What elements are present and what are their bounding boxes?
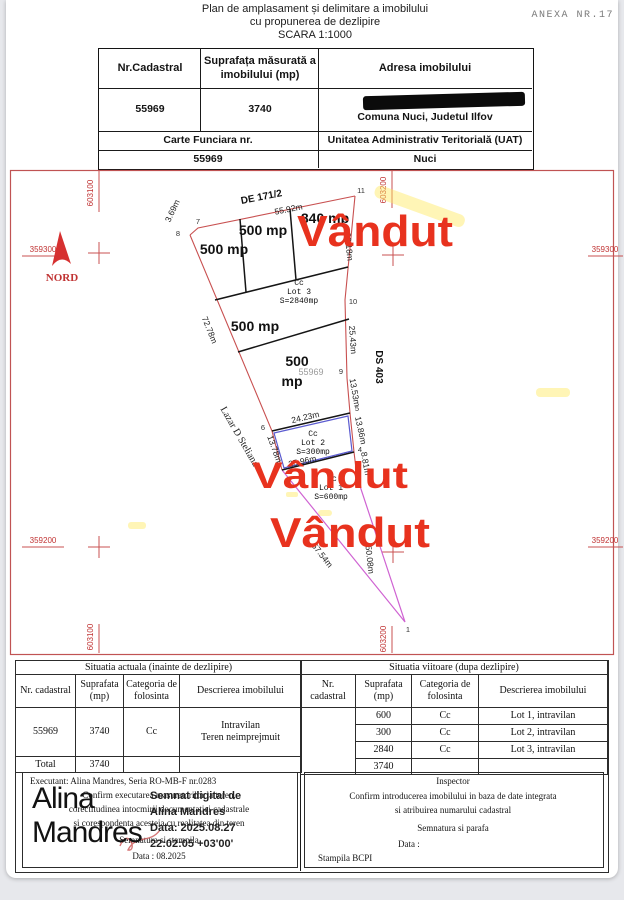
- grid-label-359300-right: 359300: [592, 245, 619, 254]
- svg-text:13.53m: 13.53m: [348, 378, 363, 408]
- sold-overlay-2: Vândut: [252, 455, 408, 496]
- lot2-suprafata: 300: [356, 725, 412, 742]
- road-right-label: DS 403: [373, 350, 384, 384]
- descriere-line1: Intravilan: [182, 720, 299, 732]
- digital-line1: Semnat digital de: [150, 788, 241, 804]
- svg-text:500 mp: 500 mp: [200, 241, 248, 257]
- svg-text:6: 6: [261, 423, 265, 432]
- current-row-descriere: Intravilan Teren neimprejmuit: [180, 708, 302, 757]
- lot3-descriere: Lot 3, intravilan: [479, 742, 608, 759]
- inspector-line3: Semnatura si parafa: [304, 823, 602, 833]
- lot3-categoria: Cc: [412, 742, 479, 759]
- future-header-nr: Nr. cadastral: [301, 675, 356, 708]
- grid-label-603100-top: 603100: [86, 179, 95, 206]
- digital-line2: Alina Mandres: [150, 804, 241, 820]
- svg-text:11: 11: [357, 186, 365, 195]
- future-nr-cell: [301, 708, 356, 775]
- svg-text:Lot 3: Lot 3: [287, 288, 311, 297]
- parcel-number-faint: 55969: [298, 367, 323, 377]
- svg-text:13.86m: 13.86m: [353, 415, 369, 445]
- svg-text:72.78m: 72.78m: [200, 315, 220, 345]
- future-table-title: Situatia viitoare (dupa dezlipire): [301, 661, 608, 675]
- inspector-line5: Stampila BCPI: [318, 853, 372, 863]
- future-header-suprafata: Suprafata (mp): [356, 675, 412, 708]
- svg-text:Cc: Cc: [308, 430, 318, 439]
- grid-label-359200-right: 359200: [592, 536, 619, 545]
- sold-overlay-1: Vândut: [297, 207, 453, 256]
- signature-name-line2: Mandres: [32, 816, 142, 850]
- svg-text:4: 4: [358, 445, 362, 454]
- grid-label-603100-bottom: 603100: [86, 623, 95, 650]
- svg-text:8: 8: [176, 229, 180, 238]
- grid-label-359300-left: 359300: [30, 245, 57, 254]
- svg-text:25.43m: 25.43m: [347, 325, 359, 354]
- digital-line3: Data: 2025.08.27: [150, 820, 241, 836]
- current-situation-table: Situatia actuala (inainte de dezlipire) …: [15, 660, 302, 773]
- future-table-row-1: 600 Cc Lot 1, intravilan: [301, 708, 608, 725]
- current-table-title: Situatia actuala (inainte de dezlipire): [16, 661, 302, 675]
- current-row-nr: 55969: [16, 708, 76, 757]
- svg-text:5: 5: [355, 404, 359, 413]
- current-header-categoria: Categoria de folosinta: [124, 675, 180, 708]
- future-situation-table: Situatia viitoare (dupa dezlipire) Nr. c…: [300, 660, 608, 775]
- road-top-label: DE 171/2: [240, 188, 283, 207]
- lot1-descriere: Lot 1, intravilan: [479, 708, 608, 725]
- future-header-descriere: Descrierea imobilului: [479, 675, 608, 708]
- svg-text:S=2840mp: S=2840mp: [280, 297, 319, 306]
- svg-text:500 mp: 500 mp: [231, 318, 279, 334]
- current-header-nr: Nr. cadastral: [16, 675, 76, 708]
- lot2-label: Cc Lot 2 S=300mp: [296, 430, 330, 457]
- digital-line4: 22:02:05 +03'00': [150, 836, 241, 852]
- future-header-categoria: Categoria de folosinta: [412, 675, 479, 708]
- svg-text:Lot 2: Lot 2: [301, 439, 325, 448]
- signature-name-line1: Alina: [32, 782, 94, 816]
- grid-label-359200-left: 359200: [30, 536, 57, 545]
- current-table-row: 55969 3740 Cc Intravilan Teren neimprejm…: [16, 708, 302, 757]
- sold-overlay-3: Vândut: [270, 509, 430, 556]
- lot2-descriere: Lot 2, intravilan: [479, 725, 608, 742]
- svg-text:7: 7: [196, 217, 200, 226]
- north-label: NORD: [46, 272, 78, 284]
- inspector-line4: Data :: [398, 839, 420, 849]
- current-header-suprafata: Suprafata (mp): [76, 675, 124, 708]
- svg-text:1: 1: [406, 625, 410, 634]
- lot1-suprafata: 600: [356, 708, 412, 725]
- svg-text:3.69m: 3.69m: [163, 198, 182, 224]
- svg-text:10: 10: [349, 297, 357, 306]
- svg-text:500 mp: 500 mp: [239, 222, 287, 238]
- inspector-line1: Confirm introducerea imobilului in baza …: [304, 791, 602, 801]
- inspector-line2: si atribuirea numarului cadastral: [304, 805, 602, 815]
- current-header-descriere: Descrierea imobilului: [180, 675, 302, 708]
- current-row-suprafata: 3740: [76, 708, 124, 757]
- grid-label-603200-bottom: 603200: [379, 625, 388, 652]
- digital-signature-block: Semnat digital de Alina Mandres Data: 20…: [150, 788, 241, 852]
- cadastral-document: Plan de amplasament și delimitare a imob…: [0, 0, 624, 900]
- lot3-suprafata: 2840: [356, 742, 412, 759]
- svg-text:Cc: Cc: [294, 279, 304, 288]
- svg-text:9: 9: [339, 367, 343, 376]
- lot1-categoria: Cc: [412, 708, 479, 725]
- current-total-label: Total: [16, 757, 76, 773]
- lot2-categoria: Cc: [412, 725, 479, 742]
- current-table-total-row: Total 3740: [16, 757, 302, 773]
- current-row-categoria: Cc: [124, 708, 180, 757]
- descriere-line2: Teren neimprejmuit: [182, 732, 299, 744]
- inspector-title: Inspector: [304, 776, 602, 786]
- current-total-value: 3740: [76, 757, 124, 773]
